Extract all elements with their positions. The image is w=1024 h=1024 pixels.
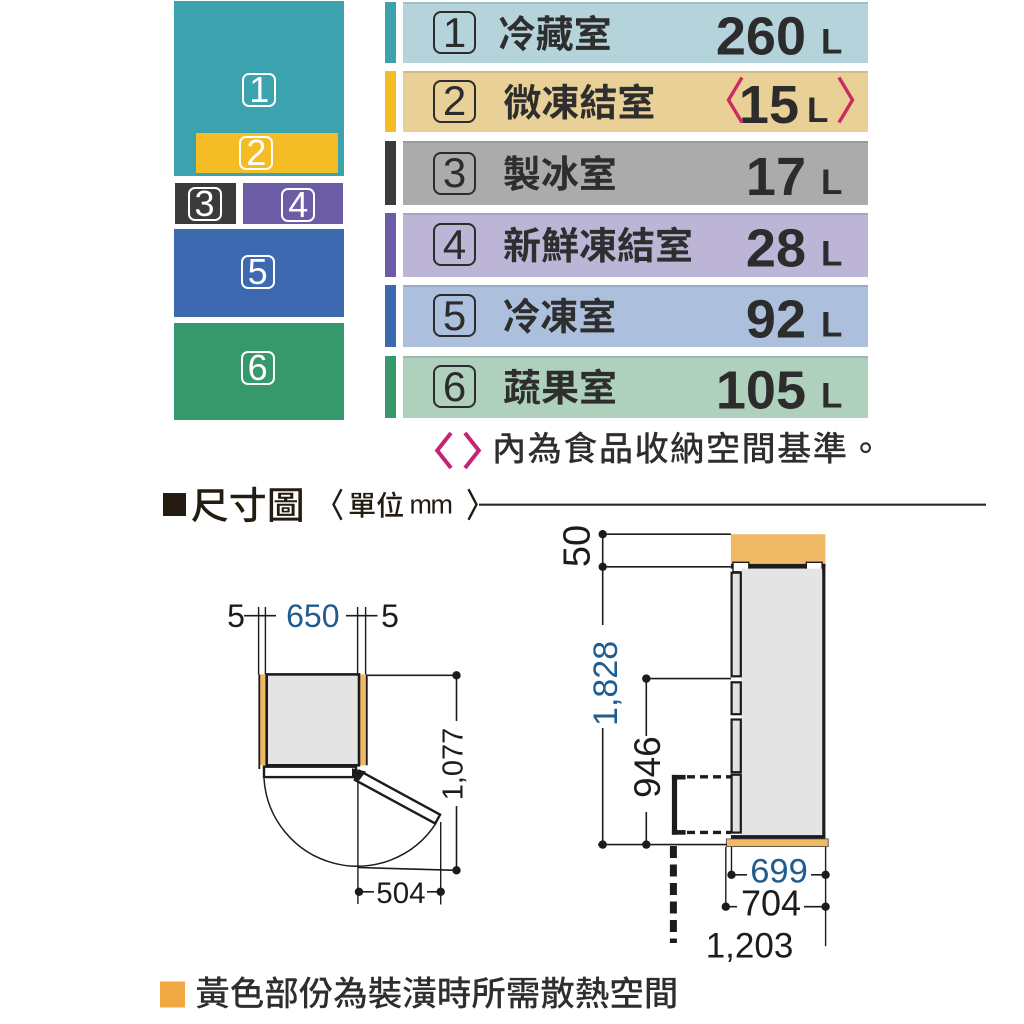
svg-text:650: 650 (286, 598, 339, 634)
svg-text:15: 15 (739, 75, 799, 135)
svg-text:17: 17 (746, 147, 806, 207)
svg-text:260: 260 (716, 6, 806, 66)
svg-text:L: L (821, 23, 842, 62)
svg-text:L: L (821, 306, 842, 345)
svg-text:L: L (821, 377, 842, 416)
svg-text:50: 50 (557, 525, 599, 567)
svg-text:L: L (821, 163, 842, 202)
svg-text:1,828: 1,828 (587, 641, 625, 726)
svg-text:1,203: 1,203 (706, 927, 794, 966)
svg-text:504: 504 (376, 877, 425, 910)
svg-text:mm: mm (410, 490, 452, 520)
svg-text:92: 92 (746, 289, 806, 349)
svg-text:L: L (821, 235, 842, 274)
svg-text:28: 28 (746, 218, 806, 278)
svg-text:946: 946 (627, 736, 668, 798)
svg-text:5: 5 (227, 598, 245, 634)
svg-text:5: 5 (381, 598, 399, 634)
svg-text:105: 105 (716, 360, 806, 420)
svg-text:704: 704 (741, 882, 801, 923)
svg-text:1,077: 1,077 (437, 728, 469, 801)
svg-text:L: L (807, 91, 828, 130)
